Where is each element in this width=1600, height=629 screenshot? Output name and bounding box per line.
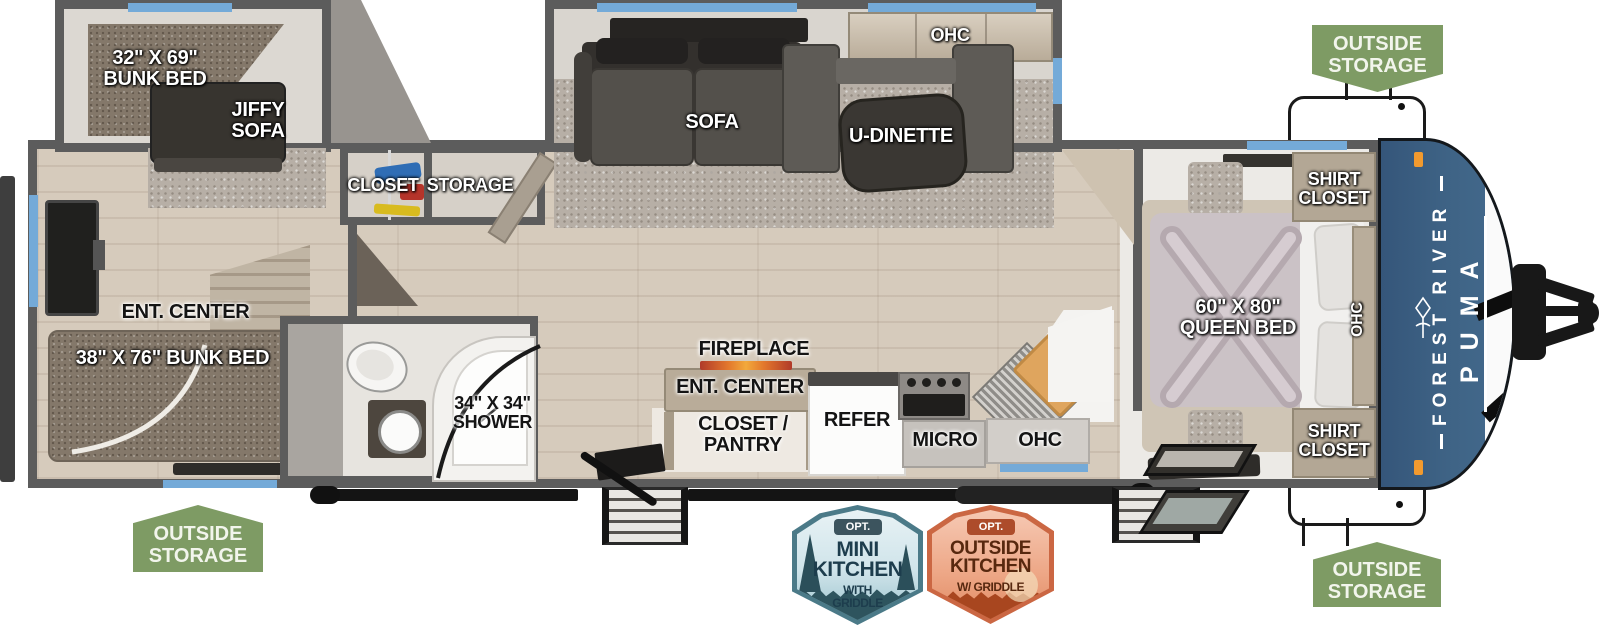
- awning-end-cap: [310, 486, 340, 504]
- label-refer: REFER: [816, 410, 898, 431]
- door-screen: [1153, 498, 1233, 524]
- awning-rail: [688, 489, 960, 501]
- label-kitchen-ent-center: ENT. CENTER: [676, 377, 804, 398]
- label-fireplace: FIREPLACE: [698, 339, 810, 360]
- outside-storage-badge: OUTSIDE STORAGE: [1313, 542, 1441, 607]
- mini-kitchen-subtitle: WITH GRIDDLE: [802, 584, 913, 610]
- rear-slide-window: [128, 3, 232, 12]
- oven-window: [903, 394, 965, 416]
- ent-center-leg: [664, 412, 674, 470]
- frame-bolt-top: [1398, 103, 1405, 110]
- label-u-dinette: U-DINETTE: [840, 126, 962, 147]
- label-closet: CLOSET: [338, 176, 428, 195]
- jack-line: [1346, 518, 1349, 546]
- brand-dash: [1440, 434, 1443, 449]
- outside-storage-badge: OUTSIDE STORAGE: [1312, 25, 1443, 92]
- opt-pill: OPT.: [834, 519, 882, 535]
- jack-line: [1302, 518, 1305, 546]
- label-bedroom-ohc: OHC: [1350, 288, 1376, 352]
- label-shirt-closet-top: SHIRT CLOSET: [1292, 170, 1376, 207]
- hitch-ball-icon: [1586, 303, 1599, 323]
- sofa-armrest: [574, 52, 592, 162]
- label-dinette-ohc: OHC: [912, 26, 988, 45]
- bed-rail: [173, 463, 285, 475]
- label-bunk-bed-38: 38" X 76" BUNK BED: [55, 348, 290, 369]
- label-rear-ent-center: ENT. CENTER: [118, 302, 253, 323]
- burner-icon: [952, 378, 961, 387]
- outside-kitchen-subtitle: W/ GRIDDLE: [935, 582, 1046, 593]
- hall-wall: [348, 222, 357, 320]
- brand-dash: [1440, 176, 1443, 191]
- mini-kitchen-badge: OPT. MINI KITCHEN WITH GRIDDLE: [792, 505, 923, 625]
- living-window-left: [597, 3, 797, 12]
- dinette-bench-top: [836, 58, 956, 84]
- rear-bumper: [0, 176, 15, 482]
- brand-maker: FOREST RIVER: [1430, 196, 1454, 432]
- sofa-headrest: [698, 38, 790, 64]
- forest-river-crest-icon: [1413, 296, 1433, 340]
- clearance-light-icon: [1414, 152, 1423, 167]
- label-closet-pantry: CLOSET / PANTRY: [688, 414, 798, 455]
- burner-icon: [922, 378, 931, 387]
- bathroom-wall-face: [288, 324, 343, 476]
- bed-cushion-top: [1188, 162, 1243, 214]
- label-sofa: SOFA: [670, 112, 754, 133]
- label-micro: MICRO: [904, 430, 986, 451]
- opt-pill: OPT.: [967, 519, 1015, 535]
- label-shirt-closet-bottom: SHIRT CLOSET: [1292, 422, 1376, 459]
- brand-underline: [1484, 216, 1487, 412]
- bedroom-window: [1247, 141, 1347, 150]
- sofa-headrest: [596, 38, 688, 64]
- label-kitchen-ohc: OHC: [1002, 430, 1078, 451]
- rv-floorplan: FOREST RIVER PUMA 32" X 69" BUNK BED JIF…: [0, 0, 1600, 629]
- refrigerator-top: [808, 372, 906, 386]
- living-window-right: [868, 3, 1036, 12]
- tv-bracket: [93, 240, 105, 270]
- door-screen: [1156, 451, 1243, 467]
- entry-door-open: [1143, 444, 1257, 476]
- rear-slide-3d-wedge: [331, 0, 431, 143]
- outside-storage-badge: OUTSIDE STORAGE: [133, 505, 263, 572]
- awning-rail: [312, 489, 578, 501]
- label-shower: 34" X 34" SHOWER: [440, 394, 545, 431]
- clearance-light-icon: [1414, 460, 1423, 475]
- label-storage: STORAGE: [426, 176, 514, 195]
- outside-kitchen-title: OUTSIDE KITCHEN: [935, 540, 1046, 576]
- label-queen-bed: 60" X 80" QUEEN BED: [1176, 297, 1300, 338]
- fireplace-flame: [700, 361, 792, 370]
- label-bunk-bed-32: 32" X 69" BUNK BED: [92, 48, 218, 89]
- bottom-window: [163, 480, 277, 488]
- brand-model: PUMA: [1456, 210, 1484, 418]
- outside-kitchen-badge: OPT. OUTSIDE KITCHEN W/ GRIDDLE: [927, 505, 1054, 624]
- dinette-bench-left: [782, 44, 840, 173]
- mini-kitchen-badge-face: OPT. MINI KITCHEN WITH GRIDDLE: [797, 510, 918, 620]
- rear-window: [29, 195, 38, 307]
- outside-kitchen-badge-face: OPT. OUTSIDE KITCHEN W/ GRIDDLE: [932, 510, 1049, 619]
- living-window-side: [1053, 58, 1062, 104]
- tv: [45, 200, 99, 316]
- mini-kitchen-title: MINI KITCHEN: [802, 540, 913, 580]
- jiffy-sofa-cushion: [154, 158, 282, 172]
- burner-icon: [937, 378, 946, 387]
- sink: [378, 410, 422, 454]
- burner-icon: [907, 378, 916, 387]
- kitchen-window: [1000, 464, 1088, 472]
- frame-bolt-bottom: [1396, 501, 1403, 508]
- label-jiffy-sofa: JIFFY SOFA: [215, 100, 301, 141]
